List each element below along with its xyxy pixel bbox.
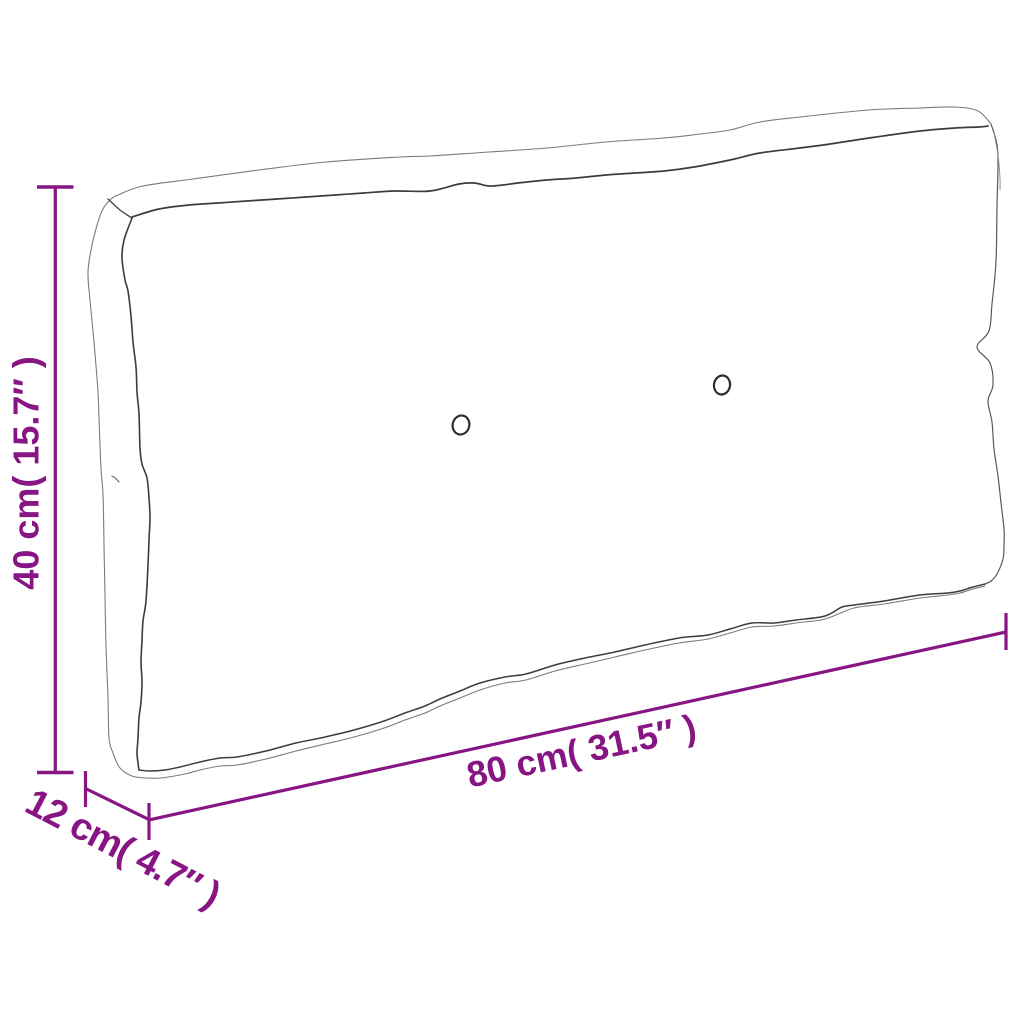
svg-text:40 cm( 15.7″ ): 40 cm( 15.7″ )	[6, 356, 47, 589]
